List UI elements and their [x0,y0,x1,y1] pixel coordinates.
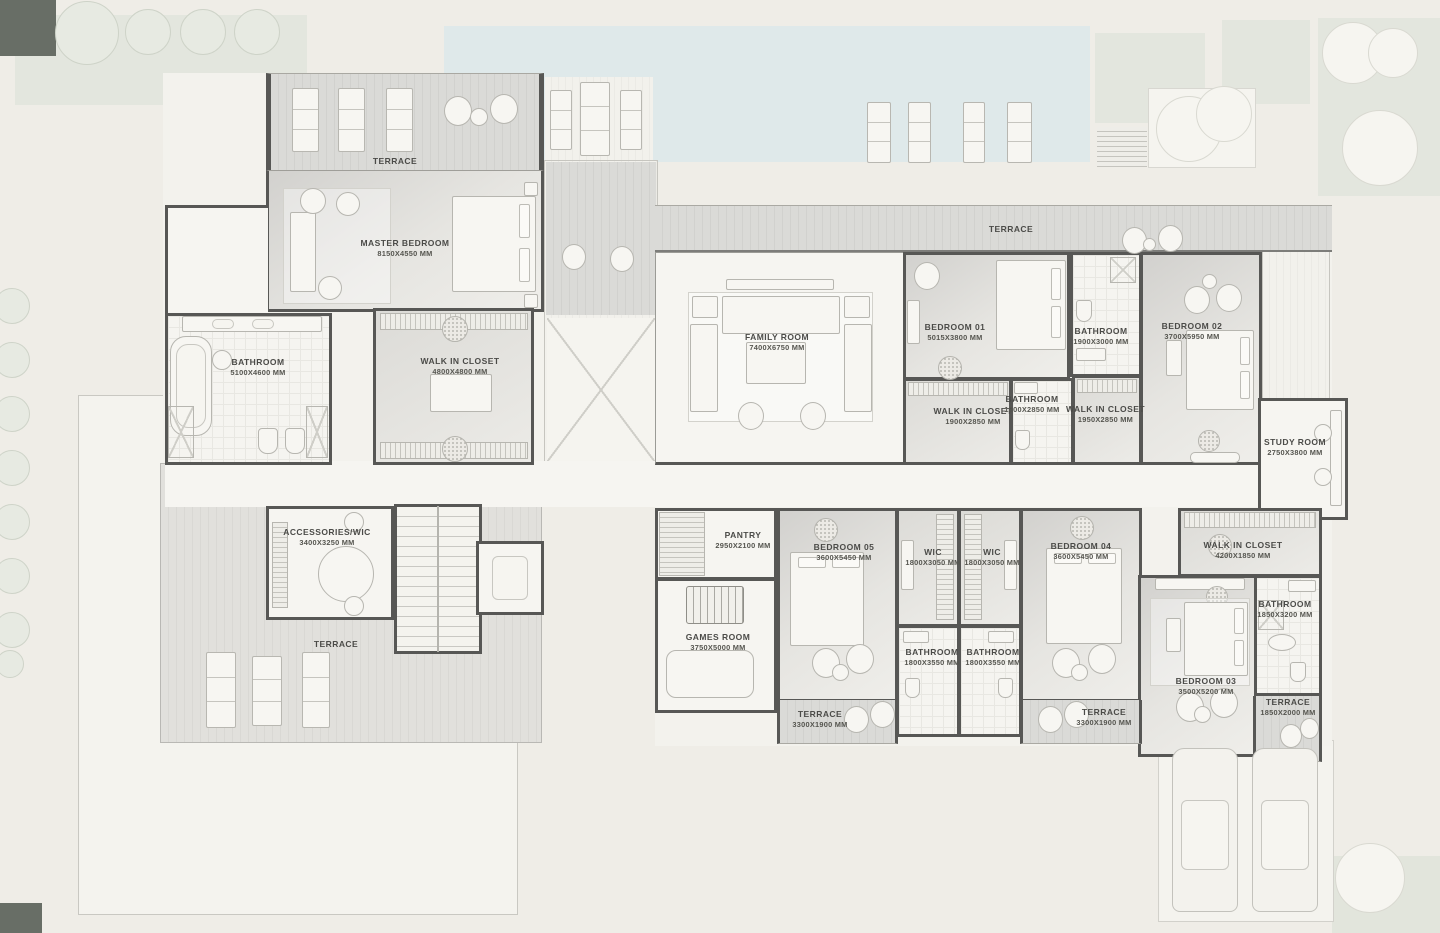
garden-steps [1097,127,1147,167]
room-dims: 1850x2000 mm [1240,708,1336,718]
vanity [988,631,1014,643]
room-label: TERRACE3300x1900 mm [765,709,875,730]
lounger [386,88,413,152]
foosball-table [686,586,744,624]
console [726,279,834,290]
room-label: WALK IN CLOSET1950x2850 mm [1048,404,1163,425]
entry-hall [165,205,268,315]
room-name: FAMILY ROOM [745,332,809,342]
room-dims: 3400x3250 mm [257,538,397,548]
side-table [1143,238,1156,251]
closet-island [430,374,492,412]
room-name: TERRACE [1082,707,1126,717]
room-dims: 3600x5450 mm [784,553,904,563]
vanity [1076,348,1106,361]
lounger [292,88,319,152]
room-name: WIC [983,547,1001,557]
room-name: TERRACE [1266,697,1310,707]
tree [0,558,30,594]
room-name: WALK IN CLOSET [420,356,499,366]
room-name: TERRACE [989,224,1033,234]
room-name: GAMES ROOM [686,632,750,642]
room-dims: 4800x4800 mm [400,367,520,377]
toilet [258,428,278,454]
bed-pillow [519,204,530,238]
armchair [692,296,718,318]
room-label: BEDROOM 015015x3800 mm [895,322,1015,343]
room-label: BEDROOM 043600x5450 mm [1021,541,1141,562]
tree [0,396,30,432]
sink [212,319,234,329]
elevator-car [492,556,528,600]
room-name: BATHROOM [1005,394,1058,404]
room-label: TERRACE1850x2000 mm [1240,697,1336,718]
dark-corner-tile [0,0,56,56]
tree [1342,110,1418,186]
armchair [336,192,360,216]
room-name: BATHROOM [1074,326,1127,336]
lounger [867,102,891,163]
room-label: WALK IN CLOSET4200x1850 mm [1183,540,1303,561]
side-table [1202,274,1217,289]
armchair [1300,718,1319,739]
armchair [1158,225,1183,252]
tree [1368,28,1418,78]
tree [0,288,30,324]
wardrobe [1184,512,1316,528]
armchair [1088,644,1116,674]
room-dims: 8150x4550 mm [335,249,475,259]
ottoman [1070,516,1094,540]
armchair [1280,724,1302,748]
bed-pillow [1240,371,1250,399]
lounger [620,90,642,150]
sofa [722,296,840,334]
room-label: PANTRY2950x2100 mm [688,530,798,551]
sofa [844,324,872,412]
lounger [302,652,330,728]
sink [1268,634,1296,651]
tree [0,450,30,486]
bidet [285,428,305,454]
side-table [1194,706,1211,723]
armchair [1166,618,1181,652]
room-dims: 2750x3800 mm [1235,448,1355,458]
toilet [1015,430,1030,450]
armchair [318,276,342,300]
room-name: WIC [924,547,942,557]
tree [0,612,30,648]
room-dims: 7400x6750 mm [712,343,842,353]
armchair [1184,286,1210,314]
vanity [1014,382,1038,394]
armchair [844,296,870,318]
armchair [914,262,940,290]
room-dims: 1800x3550 mm [938,658,1048,668]
room-name: PANTRY [725,530,762,540]
bench [1155,578,1245,590]
room-name: BEDROOM 01 [925,322,986,332]
room-label: BATHROOM5100x4600 mm [198,357,318,378]
bed-pillow [1234,640,1244,666]
shower [306,406,328,458]
tree [1196,86,1252,142]
room-label: BATHROOM1850x3200 mm [1230,599,1340,620]
room-name: BATHROOM [231,357,284,367]
room-label: TERRACE [961,224,1061,235]
toilet [1290,662,1306,682]
room-dims: 3700x5950 mm [1132,332,1252,342]
room-name: BEDROOM 05 [814,542,875,552]
pouf [738,402,764,430]
room-dims: 3600x5450 mm [1021,552,1141,562]
room-label: BEDROOM 033500x5200 mm [1146,676,1266,697]
desk [1330,410,1342,506]
staircase-divider [437,506,439,652]
center-deck-upper [546,162,656,315]
sink [252,319,274,329]
room-dims: 4200x1850 mm [1183,551,1303,561]
room-name: TERRACE [798,709,842,719]
ottoman [442,436,468,462]
nightstand [524,182,538,196]
pouf [800,402,826,430]
room-dims: 3300x1900 mm [765,720,875,730]
toilet [1076,300,1092,322]
vanity [1288,580,1316,592]
lounger [550,90,572,150]
lounger [206,652,236,728]
tree [55,1,119,65]
ottoman [1198,430,1220,452]
room-dims: 3750x5000 mm [658,643,778,653]
tree [180,9,226,55]
room-dims: 1850x3200 mm [1230,610,1340,620]
stool [344,596,364,616]
armchair [300,188,326,214]
round-chair [318,546,374,602]
room-label: STUDY ROOM2750x3800 mm [1235,437,1355,458]
armchair [846,644,874,674]
tree [234,9,280,55]
side-table [1071,664,1088,681]
room-dims: 5015x3800 mm [895,333,1015,343]
sofa [666,650,754,698]
tree [125,9,171,55]
room-label: ACCESSORIES/WIC3400x3250 mm [257,527,397,548]
ottoman [938,356,962,380]
toilet [905,678,920,698]
car-cabin [1261,800,1309,870]
vanity [903,631,929,643]
center-deck-glazing [547,318,655,462]
tree [1335,843,1405,913]
room-dims: 1950x2850 mm [1048,415,1163,425]
dark-corner-tile [0,903,42,933]
floor-plan: TERRACE MASTER BEDROOM8150x4550 mm BATHR… [0,0,1440,933]
armchair [562,244,586,270]
room-name: BEDROOM 04 [1051,541,1112,551]
room-name: WALK IN CLOSET [1203,540,1282,550]
room-dims: 3500x5200 mm [1146,687,1266,697]
room-name: ACCESSORIES/WIC [283,527,371,537]
tree [0,504,30,540]
shower [168,406,194,458]
armchair [444,96,472,126]
car-cabin [1181,800,1229,870]
bench [1190,452,1240,463]
room-name: MASTER BEDROOM [361,238,450,248]
room-label: FAMILY ROOM7400x6750 mm [712,332,842,353]
lounger [580,82,610,156]
room-label: BEDROOM 023700x5950 mm [1132,321,1252,342]
room-name: WALK IN CLOSET [1066,404,1145,414]
room-name: BEDROOM 02 [1162,321,1223,331]
desk-chair [1314,468,1332,486]
room-dims: 2950x2100 mm [688,541,798,551]
armchair [490,94,518,124]
room-label: GAMES ROOM3750x5000 mm [658,632,778,653]
room-label: MASTER BEDROOM8150x4550 mm [335,238,475,259]
room-dims: 5100x4600 mm [198,368,318,378]
room-name: TERRACE [373,156,417,166]
room-dims: 3300x1900 mm [1049,718,1159,728]
room-name: STUDY ROOM [1264,437,1326,447]
room-label: BATHROOM1800x3550 mm [938,647,1048,668]
room-name: TERRACE [314,639,358,649]
bed-pillow [519,248,530,282]
side-table [470,108,488,126]
sofa [290,212,316,292]
side-table [832,664,849,681]
bed-pillow [1051,268,1061,300]
room-name: BEDROOM 03 [1176,676,1237,686]
room-label: WALK IN CLOSET4800x4800 mm [400,356,520,377]
lounger [908,102,931,163]
lounger [338,88,365,152]
ottoman [442,316,468,342]
wardrobe [1077,379,1137,393]
tree [0,342,30,378]
corridor [165,461,1332,507]
lounger [1007,102,1032,163]
armchair [1216,284,1242,312]
room-label: BEDROOM 053600x5450 mm [784,542,904,563]
room-name: BATHROOM [966,647,1019,657]
toilet [998,678,1013,698]
lounger [963,102,985,163]
room-label: TERRACE3300x1900 mm [1049,707,1159,728]
tree [0,650,24,678]
ottoman [814,518,838,542]
shower [1110,257,1136,283]
armchair [1166,340,1182,376]
room-label: TERRACE [286,639,386,650]
room-dims: 1900x2850 mm [913,417,1033,427]
nightstand [524,294,538,308]
room-name: BATHROOM [1258,599,1311,609]
armchair [610,246,634,272]
room-label: TERRACE [345,156,445,167]
lounger [252,656,282,726]
